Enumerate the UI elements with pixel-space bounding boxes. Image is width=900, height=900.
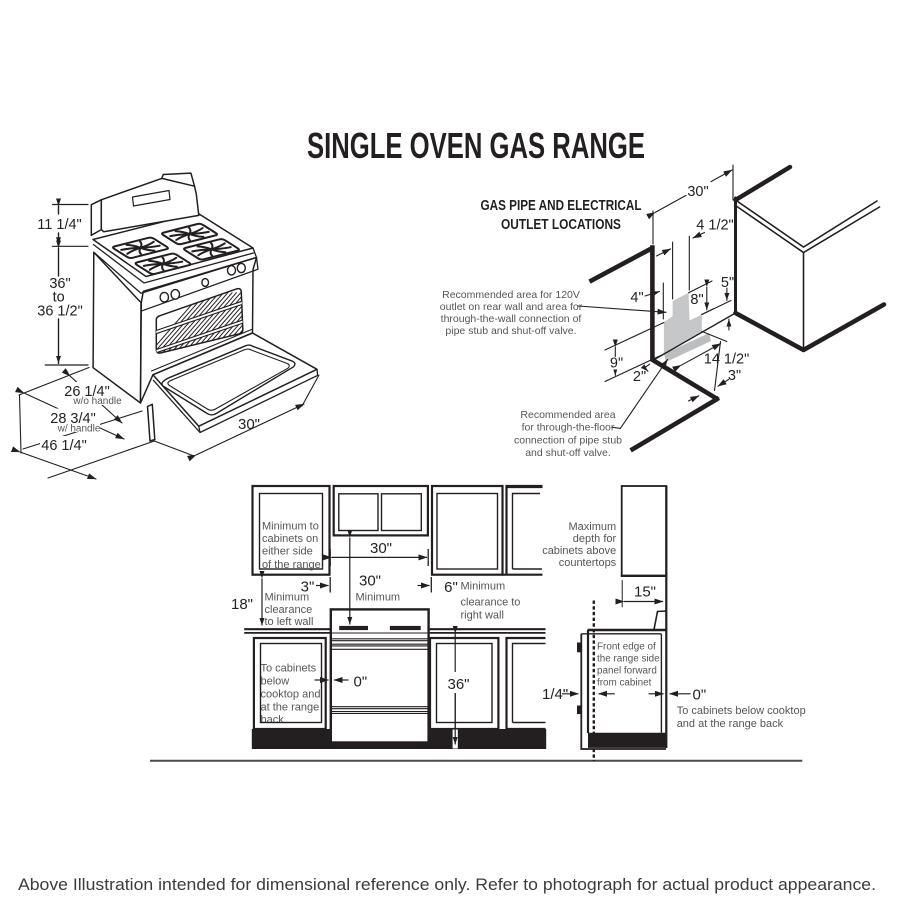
svg-text:from cabinet: from cabinet <box>597 678 652 689</box>
svg-text:18": 18" <box>231 596 253 613</box>
svg-text:SINGLE OVEN GAS RANGE: SINGLE OVEN GAS RANGE <box>307 125 645 166</box>
svg-text:30": 30" <box>687 184 708 200</box>
svg-text:Minimum: Minimum <box>461 581 506 593</box>
svg-text:at the range: at the range <box>261 702 320 714</box>
svg-text:Minimum: Minimum <box>355 592 400 604</box>
svg-text:To cabinets: To cabinets <box>261 663 317 675</box>
svg-text:below: below <box>261 676 290 688</box>
svg-text:of the range.: of the range. <box>262 559 324 571</box>
svg-text:w/ handle: w/ handle <box>57 424 101 435</box>
svg-text:30": 30" <box>359 573 381 590</box>
svg-text:To cabinets below cooktop: To cabinets below cooktop <box>677 705 806 717</box>
svg-text:and at the range back: and at the range back <box>677 718 784 730</box>
svg-text:clearance to: clearance to <box>461 597 521 609</box>
svg-text:Front edge of: Front edge of <box>597 642 656 653</box>
svg-text:1/4": 1/4" <box>542 686 568 703</box>
svg-text:Maximum: Maximum <box>569 521 617 533</box>
svg-text:5": 5" <box>721 275 734 291</box>
svg-text:4 1/2": 4 1/2" <box>696 218 733 234</box>
svg-text:15": 15" <box>634 584 656 601</box>
svg-text:for through-the-floor: for through-the-floor <box>522 422 615 434</box>
svg-text:outlet on rear wall and area f: outlet on rear wall and area for <box>440 301 583 313</box>
svg-text:0": 0" <box>693 686 707 703</box>
svg-text:36 1/2": 36 1/2" <box>37 304 82 320</box>
svg-text:Recommended area for 120V: Recommended area for 120V <box>442 289 580 301</box>
svg-text:Above Illustration intended fo: Above Illustration intended for dimensio… <box>18 875 876 894</box>
svg-text:30": 30" <box>238 416 260 433</box>
svg-text:11 1/4": 11 1/4" <box>37 217 81 233</box>
svg-text:countertops: countertops <box>559 557 617 569</box>
svg-text:clearance: clearance <box>265 604 313 616</box>
svg-text:w/o handle: w/o handle <box>72 396 122 407</box>
svg-text:right wall: right wall <box>461 610 504 622</box>
svg-text:OUTLET LOCATIONS: OUTLET LOCATIONS <box>501 217 621 233</box>
svg-text:Minimum: Minimum <box>265 592 310 604</box>
svg-text:30": 30" <box>370 540 392 557</box>
svg-text:9": 9" <box>610 356 623 372</box>
svg-text:to left wall: to left wall <box>265 616 314 628</box>
svg-text:Minimum to: Minimum to <box>262 521 319 533</box>
svg-text:Recommended area: Recommended area <box>520 409 615 421</box>
svg-text:GAS PIPE AND ELECTRICAL: GAS PIPE AND ELECTRICAL <box>481 198 642 214</box>
svg-text:connection of pipe stub: connection of pipe stub <box>514 434 622 446</box>
svg-text:back: back <box>261 714 285 726</box>
svg-text:36": 36" <box>447 676 469 693</box>
svg-text:14 1/2": 14 1/2" <box>704 352 749 368</box>
svg-text:pipe stub and shut-off valve.: pipe stub and shut-off valve. <box>445 325 576 337</box>
svg-text:3": 3" <box>728 368 741 384</box>
svg-text:8": 8" <box>690 292 703 308</box>
svg-text:through-the-wall connection of: through-the-wall connection of <box>441 313 582 325</box>
svg-text:46 1/4": 46 1/4" <box>41 438 86 454</box>
svg-text:cabinets above: cabinets above <box>542 545 616 557</box>
svg-text:0": 0" <box>354 674 368 691</box>
svg-text:4": 4" <box>630 290 643 306</box>
svg-text:6": 6" <box>444 579 458 596</box>
svg-text:depth for: depth for <box>573 533 617 545</box>
svg-text:cooktop and: cooktop and <box>261 689 321 701</box>
svg-text:panel forward: panel forward <box>597 666 657 677</box>
svg-text:either side: either side <box>262 546 313 558</box>
svg-text:2": 2" <box>633 369 646 385</box>
svg-text:and shut-off valve.: and shut-off valve. <box>525 447 611 459</box>
svg-text:the range side: the range side <box>597 654 660 665</box>
svg-text:cabinets on: cabinets on <box>262 533 318 545</box>
